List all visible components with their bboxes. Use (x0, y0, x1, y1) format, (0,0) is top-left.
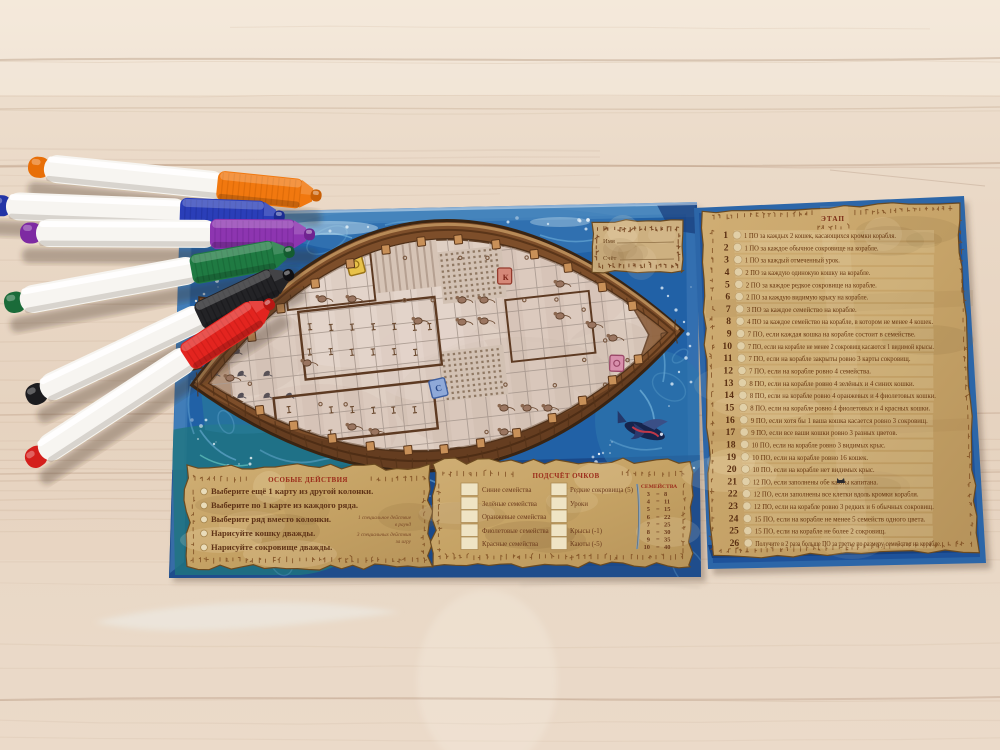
svg-text:=: = (656, 499, 660, 506)
svg-text:5: 5 (647, 506, 650, 513)
svg-text:35: 35 (664, 537, 670, 544)
svg-text:23: 23 (728, 501, 738, 512)
svg-text:4 ПО за каждое семейство на ко: 4 ПО за каждое семейство на корабле, в к… (747, 319, 933, 326)
svg-text:1: 1 (723, 230, 728, 241)
svg-text:9: 9 (727, 329, 732, 340)
svg-text:8: 8 (647, 529, 650, 536)
svg-text:К: К (503, 273, 509, 282)
svg-text:=: = (656, 506, 660, 513)
svg-text:2 ПО за каждую видимую крысу н: 2 ПО за каждую видимую крысу на корабле. (746, 295, 868, 302)
svg-text:Фиолетовые семейства: Фиолетовые семейства (482, 528, 549, 535)
svg-text:7: 7 (726, 304, 731, 315)
svg-text:Крысы (-1): Крысы (-1) (570, 528, 602, 535)
svg-text:15 ПО, если на корабле не боле: 15 ПО, если на корабле не более 2 сокров… (755, 529, 886, 536)
svg-text:=: = (656, 544, 660, 551)
svg-text:в раунд: в раунд (395, 521, 412, 528)
svg-text:Получите в 2 раза больше ПО за: Получите в 2 раза больше ПО за третье по… (755, 541, 941, 548)
svg-text:6: 6 (725, 292, 730, 303)
svg-text:7 ПО, если каждая кошка на кор: 7 ПО, если каждая кошка на корабле состо… (748, 332, 916, 339)
svg-text:=: = (656, 514, 660, 521)
svg-text:Красные семейства: Красные семейства (482, 541, 538, 548)
svg-text:4: 4 (725, 267, 730, 278)
svg-text:8 ПО, если на корабле ровно 4: 8 ПО, если на корабле ровно 4 зелёных и … (749, 381, 914, 388)
svg-text:10: 10 (644, 544, 650, 551)
svg-text:15 ПО, если на корабле не мене: 15 ПО, если на корабле не менее 5 семейс… (754, 516, 925, 523)
svg-text:12 ПО, если на корабле ровно 3: 12 ПО, если на корабле ровно 3 редких и … (754, 504, 934, 511)
svg-text:Имя: Имя (603, 238, 615, 245)
svg-text:12 ПО, если заполнены все клет: 12 ПО, если заполнены все клетки вдоль к… (754, 492, 919, 499)
svg-text:3 специальных действия: 3 специальных действия (357, 531, 412, 538)
svg-text:9: 9 (647, 537, 650, 544)
svg-text:ОСОБЫЕ ДЕЙСТВИЯ: ОСОБЫЕ ДЕЙСТВИЯ (268, 476, 348, 484)
svg-text:20: 20 (727, 464, 737, 475)
svg-text:Нарисуйте кошку дважды.: Нарисуйте кошку дважды. (211, 528, 315, 538)
svg-text:21: 21 (727, 476, 737, 487)
svg-text:2 ПО за каждую одинокую кошку: 2 ПО за каждую одинокую кошку на корабле… (745, 270, 870, 277)
svg-text:Счёт: Счёт (603, 255, 617, 262)
svg-text:Синие семейства: Синие семейства (482, 487, 531, 494)
svg-text:8: 8 (664, 491, 667, 498)
svg-text:30: 30 (664, 529, 670, 536)
svg-text:=: = (656, 537, 660, 544)
svg-text:40: 40 (664, 544, 670, 551)
svg-text:1 ПО за каждый отмеченный урок: 1 ПО за каждый отмеченный урок. (745, 258, 840, 265)
svg-text:12 ПО, если заполнены обе кают: 12 ПО, если заполнены обе каюты капитана… (753, 479, 878, 486)
svg-text:15: 15 (664, 506, 670, 513)
svg-text:15: 15 (725, 403, 735, 414)
svg-text:25: 25 (664, 521, 670, 528)
svg-text:7 ПО, если на корабле не менее: 7 ПО, если на корабле не менее 2 сокрови… (748, 344, 934, 351)
svg-text:8 ПО, если на корабле ровно 4: 8 ПО, если на корабле ровно 4 оранжевых … (750, 393, 936, 400)
svg-text:Зелёные семейства: Зелёные семейства (482, 501, 537, 508)
svg-text:Выберите ряд вместо колонки.: Выберите ряд вместо колонки. (211, 514, 331, 524)
svg-text:3: 3 (647, 491, 650, 498)
svg-text:1 специальное действие: 1 специальное действие (358, 514, 412, 521)
svg-text:3 ПО за каждое семейство на ко: 3 ПО за каждое семейство на корабле. (747, 307, 857, 314)
svg-text:25: 25 (729, 526, 739, 537)
svg-text:5: 5 (725, 279, 730, 290)
svg-text:7 ПО, если на корабле закрыты: 7 ПО, если на корабле закрыты ровно 3 ка… (749, 356, 911, 363)
svg-text:Выберите по 1 карте из каждого: Выберите по 1 карте из каждого ряда. (211, 500, 358, 510)
svg-text:2 ПО за каждое редкое сокровищ: 2 ПО за каждое редкое сокровище на кораб… (746, 282, 877, 289)
svg-text:8 ПО, если на корабле ровно 4: 8 ПО, если на корабле ровно 4 фиолетовых… (750, 406, 930, 413)
svg-text:Каюты (-5): Каюты (-5) (570, 541, 602, 548)
svg-text:24: 24 (729, 513, 739, 524)
svg-text:Редкие сокровища (5): Редкие сокровища (5) (570, 487, 633, 494)
svg-text:10 ПО, если на корабле ровно 3: 10 ПО, если на корабле ровно 3 видимых к… (752, 442, 886, 449)
svg-text:3: 3 (724, 255, 729, 266)
svg-text:9 ПО, если все ваши кошки ровн: 9 ПО, если все ваши кошки ровно 3 разных… (751, 430, 897, 437)
svg-text:11: 11 (664, 499, 670, 506)
svg-text:за игру: за игру (395, 539, 412, 545)
svg-text:10 ПО, если на корабле нет вид: 10 ПО, если на корабле нет видимых крыс. (753, 467, 875, 474)
svg-text:=: = (656, 521, 660, 528)
svg-text:Оранжевые семейства: Оранжевые семейства (482, 514, 546, 521)
svg-text:22: 22 (664, 514, 670, 521)
svg-text:7 ПО, если на корабле ровно 4: 7 ПО, если на корабле ровно 4 семейства. (749, 369, 871, 376)
svg-text:ЭТАП: ЭТАП (821, 215, 845, 223)
svg-text:ПОДСЧЁТ ОЧКОВ: ПОДСЧЁТ ОЧКОВ (532, 472, 599, 480)
svg-text:19: 19 (727, 452, 737, 463)
svg-text:13: 13 (724, 378, 734, 389)
svg-text:18: 18 (726, 439, 736, 450)
svg-text:=: = (656, 491, 660, 498)
svg-text:16: 16 (725, 415, 735, 426)
svg-text:=: = (656, 529, 660, 536)
svg-text:14: 14 (724, 390, 734, 401)
svg-text:СЕМЕЙСТВА: СЕМЕЙСТВА (641, 482, 677, 490)
svg-text:10 ПО, если на корабле ровно 1: 10 ПО, если на корабле ровно 16 кошек. (752, 455, 868, 462)
svg-text:12: 12 (723, 366, 733, 377)
svg-text:26: 26 (730, 538, 740, 549)
svg-text:22: 22 (728, 489, 738, 500)
svg-text:1 ПО за каждое обычное сокрови: 1 ПО за каждое обычное сокровище на кора… (745, 245, 879, 252)
svg-text:2: 2 (724, 242, 729, 253)
svg-text:11: 11 (723, 353, 732, 364)
svg-text:Нарисуйте сокровище дважды.: Нарисуйте сокровище дважды. (211, 542, 332, 552)
svg-text:1 ПО за каждых 2 кошек, касающ: 1 ПО за каждых 2 кошек, касающихся кромк… (744, 233, 896, 240)
svg-text:17: 17 (726, 427, 736, 438)
svg-text:8: 8 (726, 316, 731, 327)
svg-text:9 ПО, если хотя бы 1 ваша кошк: 9 ПО, если хотя бы 1 ваша кошка касается… (751, 418, 928, 425)
svg-text:Уроки: Уроки (570, 501, 588, 508)
svg-text:Выберите ещё 1 карту из другой: Выберите ещё 1 карту из другой колонки. (211, 486, 373, 496)
svg-text:10: 10 (722, 341, 732, 352)
